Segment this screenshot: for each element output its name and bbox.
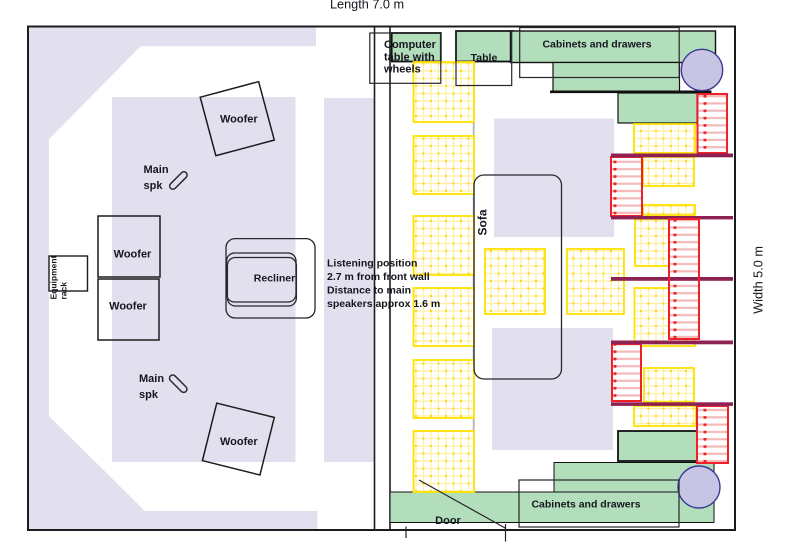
svg-text:Listening position: Listening position (327, 258, 417, 270)
svg-text:Equipment: Equipment (49, 255, 59, 299)
svg-text:Main: Main (139, 373, 164, 385)
svg-text:spk: spk (144, 180, 164, 192)
svg-text:Sofa: Sofa (476, 209, 490, 235)
svg-text:Woofer: Woofer (220, 113, 258, 125)
svg-text:2.7 m from front wall: 2.7 m from front wall (327, 271, 430, 283)
svg-text:Length 7.0 m: Length 7.0 m (330, 0, 404, 12)
svg-text:wheels: wheels (383, 64, 421, 76)
svg-text:table with: table with (384, 51, 435, 63)
svg-text:Door: Door (435, 515, 461, 527)
svg-text:Woofer: Woofer (109, 301, 147, 313)
svg-text:Woofer: Woofer (114, 249, 152, 261)
svg-text:Cabinets and drawers: Cabinets and drawers (531, 499, 640, 511)
svg-text:Cabinets and drawers: Cabinets and drawers (542, 38, 651, 50)
svg-text:Table: Table (471, 52, 498, 64)
svg-text:spk: spk (139, 389, 159, 401)
svg-text:Recliner: Recliner (254, 273, 295, 285)
svg-text:Main: Main (144, 164, 169, 176)
svg-text:Computer: Computer (384, 39, 437, 51)
svg-text:rack: rack (59, 282, 69, 300)
svg-text:speakers approx 1.6 m: speakers approx 1.6 m (327, 298, 440, 310)
svg-text:Woofer: Woofer (220, 436, 258, 448)
svg-text:Width 5.0 m: Width 5.0 m (752, 246, 766, 314)
svg-text:Distance to main: Distance to main (327, 285, 411, 297)
